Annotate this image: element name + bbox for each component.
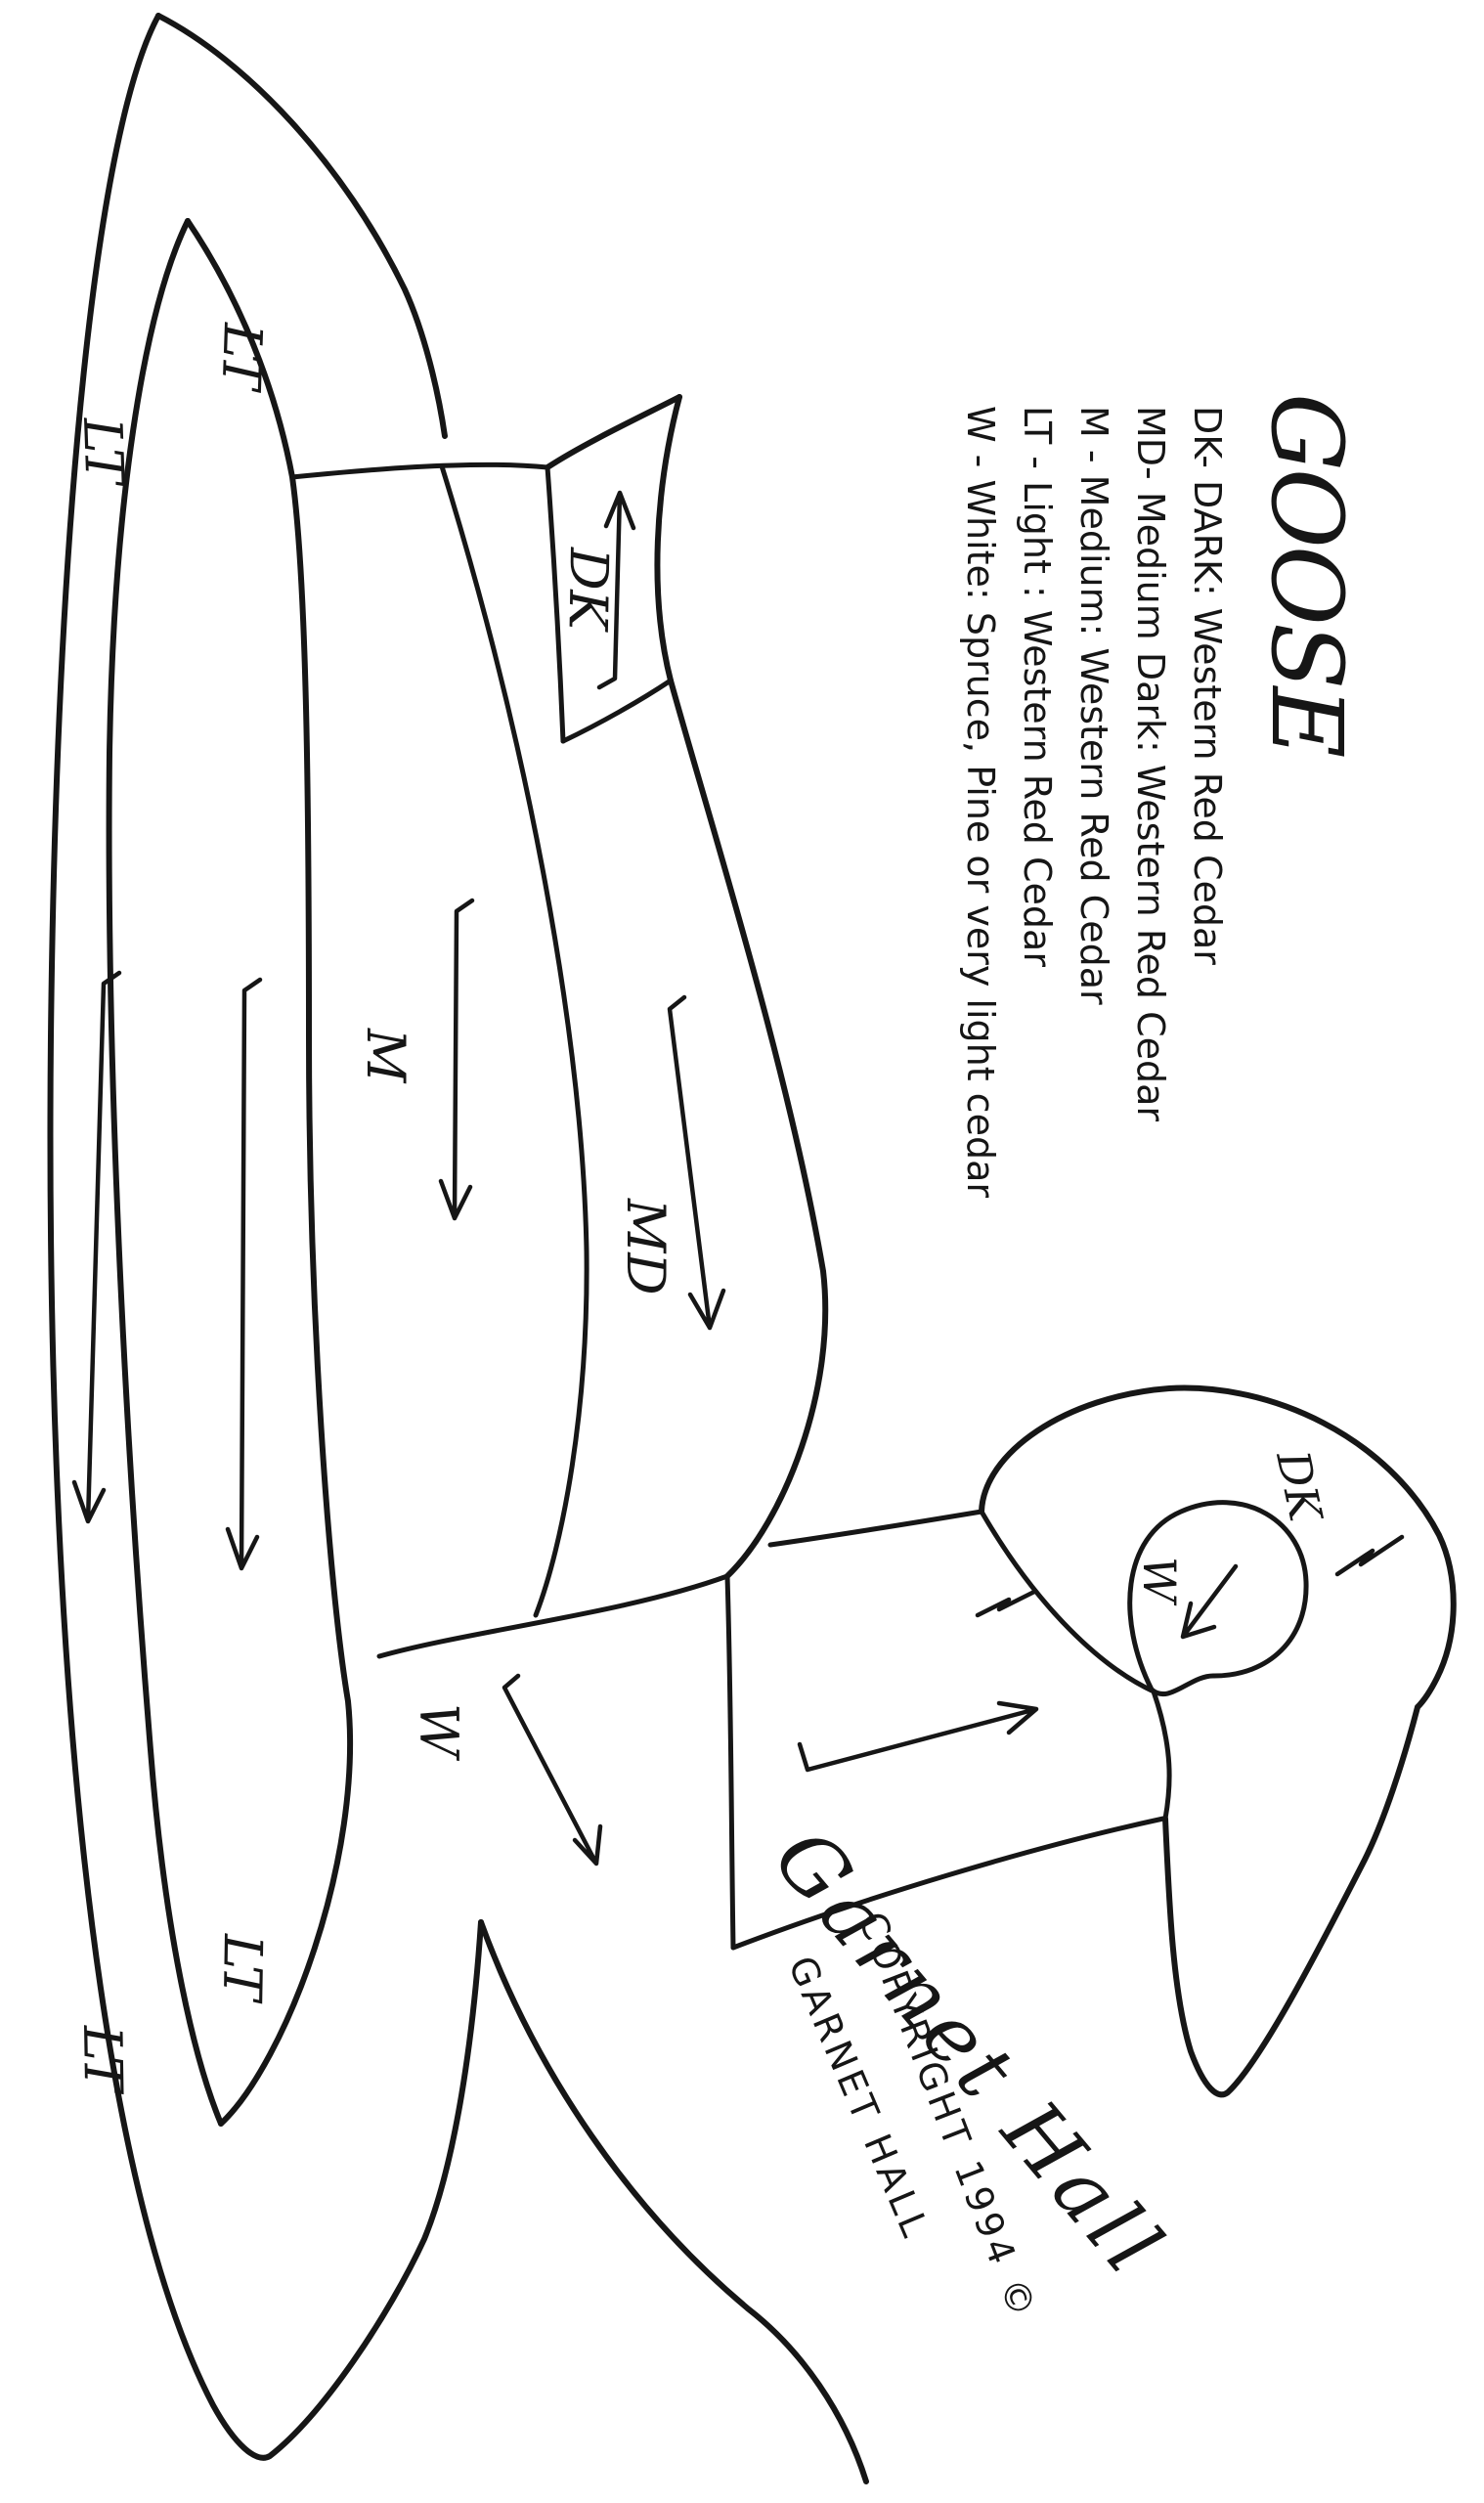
grain-arrow-breast [504,1676,600,1864]
grain-arrow-wing-inner [228,980,260,1568]
outer-wing-upper-edge [158,16,445,436]
grain-arrow-head [1337,1537,1402,1574]
label-breast-w: W [408,1703,469,1762]
body-seam-m-md [442,466,587,1615]
back-seam [292,464,547,477]
scanned-pattern-page: GOOSE DK- DARK: Western Red Cedar MD- Me… [0,0,1484,2503]
neck-upper-seam [770,1512,982,1545]
grain-arrow-neck [800,1703,1036,1770]
grain-arrow-body-md [670,997,723,1328]
legend-line-dk: DK- DARK: Western Red Cedar [1186,406,1229,965]
legend-line-md: MD- Medium Dark: Western Red Cedar [1129,406,1172,1121]
label-wing-upper-1: LT [210,322,274,395]
label-wing-lower-1: LT [211,1933,274,2005]
goose-pattern-drawing: GOOSE DK- DARK: Western Red Cedar MD- Me… [0,0,1484,2503]
inner-wing-left-edge [109,221,221,2124]
tail-bottom-seam [563,681,671,741]
page-title: GOOSE [1249,393,1364,757]
grain-arrow-body-m [441,900,472,1218]
breast-top-seam [379,1576,727,1656]
beak-outline [1165,1707,1418,2094]
legend: DK- DARK: Western Red Cedar MD- Medium D… [959,406,1229,1198]
signature-block: Garnet Hall COPYRIGHT 1994 © GARNET HALL [756,1811,1184,2326]
label-body-md: MD [615,1198,677,1295]
grain-arrow-neck-back [978,1592,1034,1615]
inner-wing-right-edge [188,221,350,2124]
body-outline [671,681,825,1576]
label-wing-lower-2: LT [71,2024,134,2096]
label-body-m: M [355,1028,416,1084]
legend-line-w: W - White: Spruce, Pine or very light ce… [959,406,1002,1198]
grain-arrow-cheek [1183,1566,1236,1637]
label-cheek-w: W [1133,1557,1186,1606]
tail-upper-edge [547,397,679,467]
legend-line-m: M - Medium: Western Red Cedar [1072,406,1115,1005]
tail-right-edge [657,397,679,681]
label-wing-upper-2: LT [71,416,135,489]
legend-line-lt: LT - Light : Western Red Cedar [1016,406,1059,967]
label-head-dk: DK [1266,1445,1332,1527]
breast-right-seam [727,1576,733,1948]
label-tail-dk: DK [556,547,620,633]
